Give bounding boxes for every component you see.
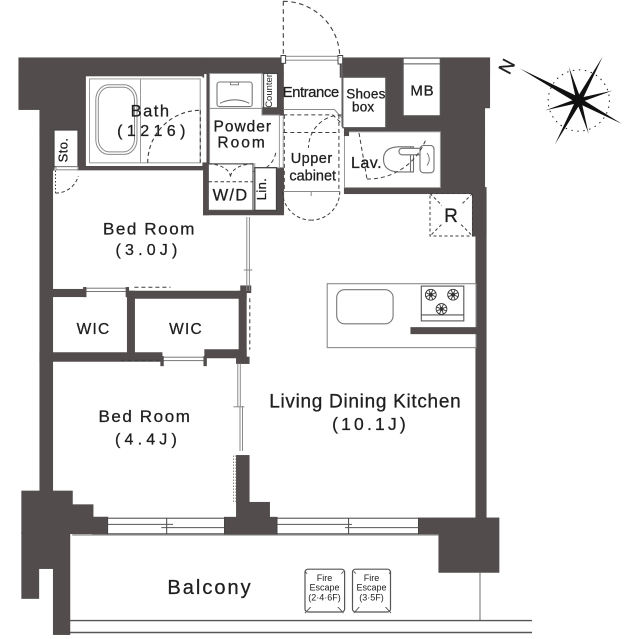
svg-text:Lav.: Lav. [351, 155, 382, 172]
svg-text:WIC: WIC [77, 321, 111, 338]
svg-text:W/D: W/D [213, 187, 249, 205]
svg-text:(2·4·6F): (2·4·6F) [308, 593, 341, 603]
svg-text:WIC: WIC [169, 321, 203, 338]
svg-text:Entrance: Entrance [283, 84, 339, 101]
svg-text:Counter: Counter [264, 74, 275, 108]
svg-text:(3.0J): (3.0J) [115, 242, 181, 259]
svg-text:Fire: Fire [364, 573, 380, 583]
svg-text:(3·5F): (3·5F) [359, 593, 384, 603]
svg-text:R: R [444, 206, 458, 227]
svg-text:(10.1J): (10.1J) [332, 414, 409, 434]
svg-text:Lin.: Lin. [254, 178, 269, 201]
svg-text:Upper: Upper [291, 151, 333, 167]
svg-text:cabinet: cabinet [289, 169, 336, 185]
svg-text:box: box [352, 100, 374, 115]
svg-text:Powder: Powder [214, 119, 273, 136]
svg-text:Bed Room: Bed Room [98, 407, 191, 426]
svg-text:Living Dining Kitchen: Living Dining Kitchen [269, 392, 461, 413]
svg-text:MB: MB [410, 83, 434, 100]
svg-text:Escape: Escape [309, 583, 339, 593]
svg-text:Sto.: Sto. [56, 138, 71, 163]
svg-text:Bath: Bath [131, 103, 171, 121]
svg-text:(4.4J): (4.4J) [115, 432, 181, 449]
svg-text:Balcony: Balcony [167, 577, 252, 599]
svg-text:Escape: Escape [356, 583, 386, 593]
svg-text:(1216): (1216) [117, 123, 190, 140]
svg-text:Room: Room [217, 135, 266, 152]
svg-text:Fire: Fire [317, 573, 333, 583]
svg-text:Bed Room: Bed Room [103, 220, 196, 239]
